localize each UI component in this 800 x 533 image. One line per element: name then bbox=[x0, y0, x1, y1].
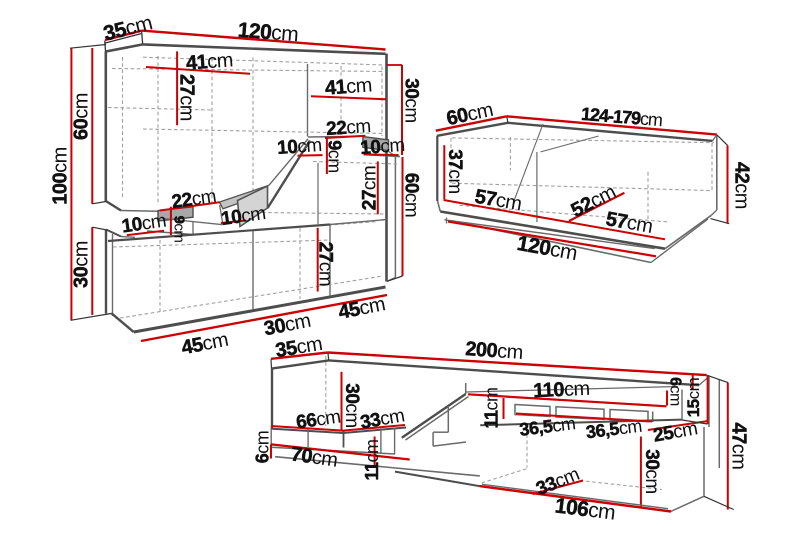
svg-text:10cm: 10cm bbox=[360, 135, 406, 159]
svg-text:27cm: 27cm bbox=[314, 242, 335, 286]
svg-text:42cm: 42cm bbox=[730, 162, 752, 209]
svg-text:15cm: 15cm bbox=[684, 377, 703, 417]
svg-text:41cm: 41cm bbox=[185, 50, 233, 75]
svg-text:100cm: 100cm bbox=[50, 147, 72, 205]
svg-text:10cm: 10cm bbox=[277, 135, 323, 159]
svg-text:30cm: 30cm bbox=[641, 449, 662, 493]
svg-text:11cm: 11cm bbox=[362, 439, 382, 480]
svg-text:9cm: 9cm bbox=[171, 216, 188, 243]
svg-text:120cm: 120cm bbox=[237, 18, 299, 46]
svg-text:47cm: 47cm bbox=[727, 423, 749, 470]
svg-text:27cm: 27cm bbox=[360, 166, 381, 210]
svg-text:30cm: 30cm bbox=[400, 78, 421, 122]
svg-text:30cm: 30cm bbox=[341, 383, 362, 427]
svg-text:37cm: 37cm bbox=[444, 149, 465, 193]
svg-text:200cm: 200cm bbox=[465, 338, 524, 364]
svg-text:60cm: 60cm bbox=[400, 173, 421, 217]
svg-text:11cm: 11cm bbox=[481, 387, 501, 428]
svg-text:9cm: 9cm bbox=[325, 140, 345, 173]
svg-text:6cm: 6cm bbox=[252, 431, 272, 464]
svg-text:41cm: 41cm bbox=[324, 75, 372, 100]
svg-text:110cm: 110cm bbox=[533, 378, 590, 402]
svg-text:27cm: 27cm bbox=[175, 74, 197, 121]
svg-text:6cm: 6cm bbox=[666, 377, 683, 406]
svg-text:60cm: 60cm bbox=[71, 93, 93, 140]
svg-text:22cm: 22cm bbox=[326, 116, 372, 140]
svg-text:30cm: 30cm bbox=[71, 241, 93, 288]
